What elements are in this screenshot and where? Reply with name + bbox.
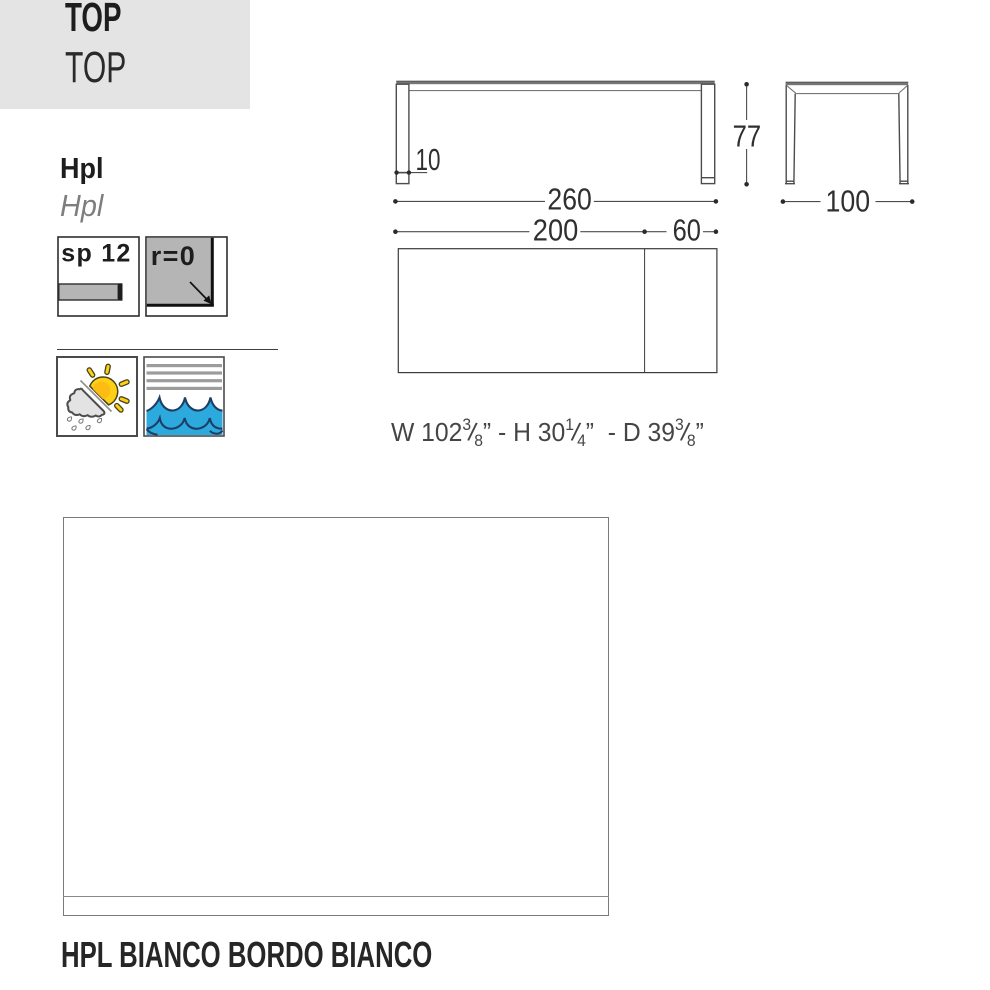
svg-text:r=0: r=0 bbox=[151, 241, 195, 271]
svg-text:10: 10 bbox=[416, 142, 441, 177]
svg-text:60: 60 bbox=[673, 213, 701, 248]
svg-text:200: 200 bbox=[533, 213, 579, 248]
svg-text:77: 77 bbox=[733, 119, 762, 154]
svg-text:sp 12: sp 12 bbox=[61, 240, 130, 268]
svg-text:260: 260 bbox=[547, 182, 591, 217]
svg-text:100: 100 bbox=[826, 183, 871, 218]
